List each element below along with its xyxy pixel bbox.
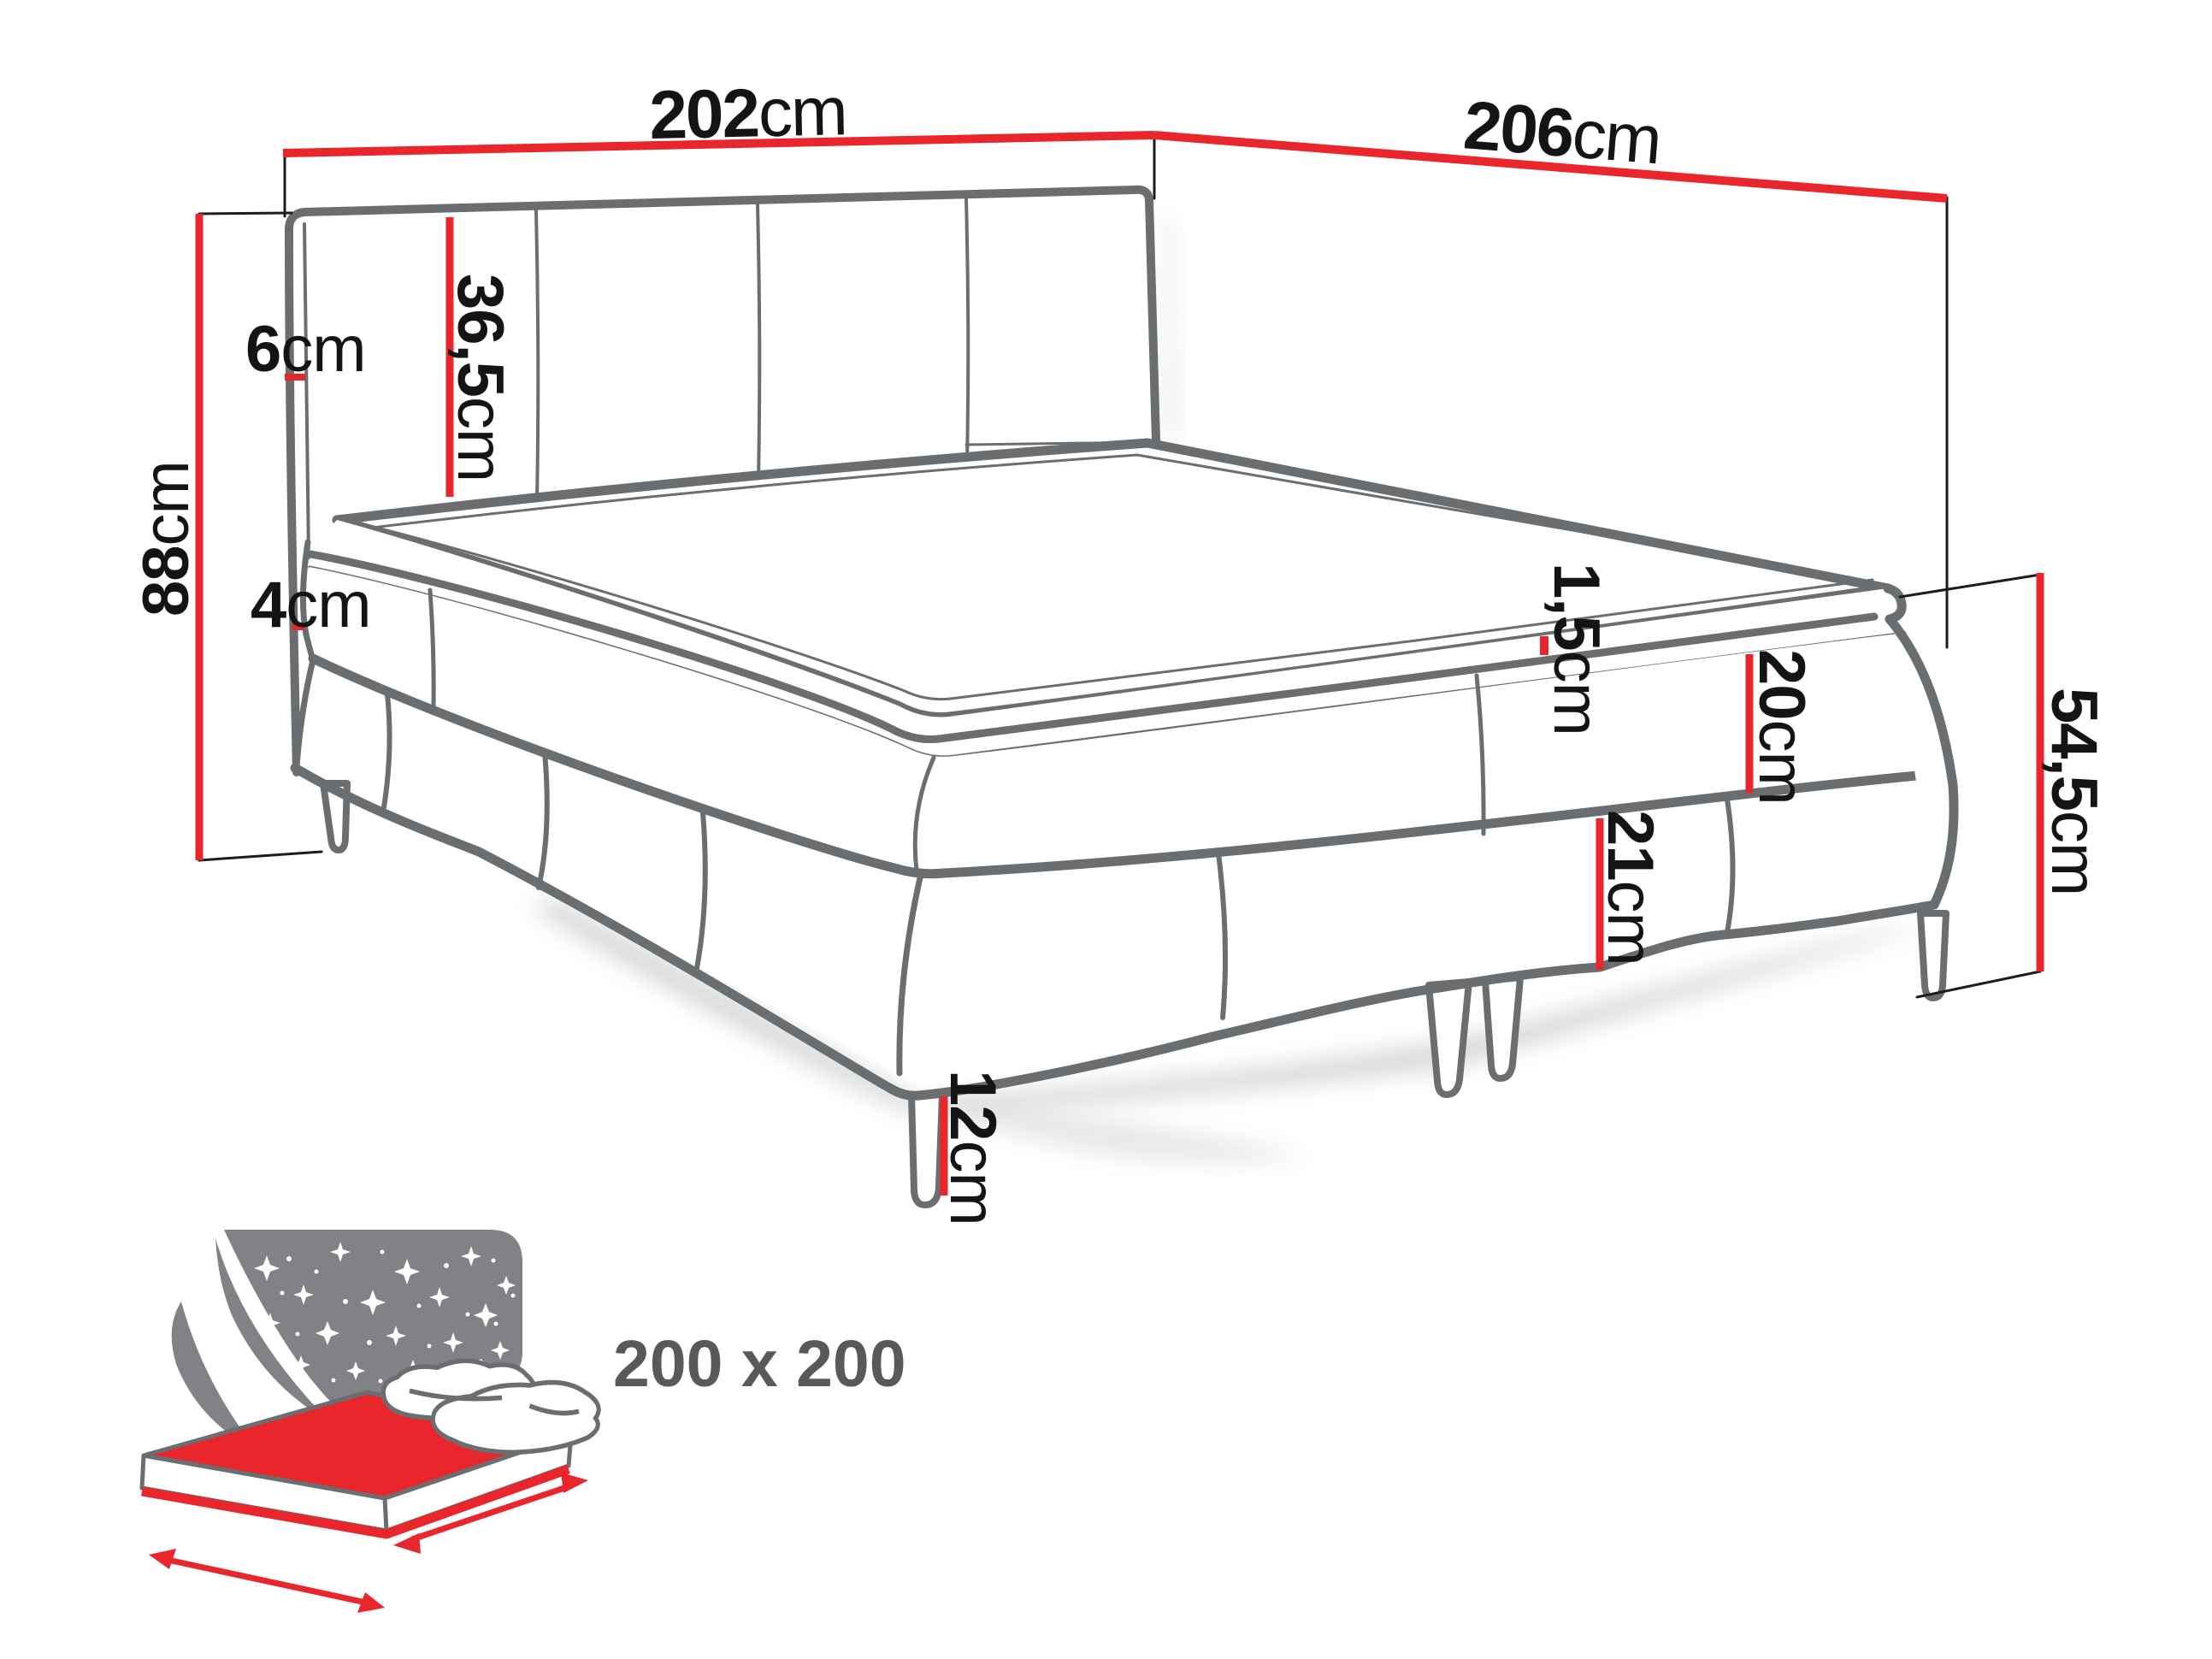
svg-text:54,5cm: 54,5cm	[2038, 688, 2110, 895]
svg-text:6cm: 6cm	[245, 313, 366, 386]
svg-text:200 x 200: 200 x 200	[613, 1327, 906, 1401]
svg-text:202cm: 202cm	[648, 73, 846, 153]
svg-text:36,5cm: 36,5cm	[444, 274, 516, 481]
svg-text:20cm: 20cm	[1745, 649, 1818, 805]
svg-text:21cm: 21cm	[1594, 810, 1666, 965]
svg-text:206cm: 206cm	[1461, 86, 1664, 178]
svg-text:12cm: 12cm	[936, 1070, 1009, 1225]
svg-text:4cm: 4cm	[251, 569, 371, 641]
svg-text:1,5cm: 1,5cm	[1540, 563, 1613, 735]
svg-text:88cm: 88cm	[130, 461, 203, 617]
